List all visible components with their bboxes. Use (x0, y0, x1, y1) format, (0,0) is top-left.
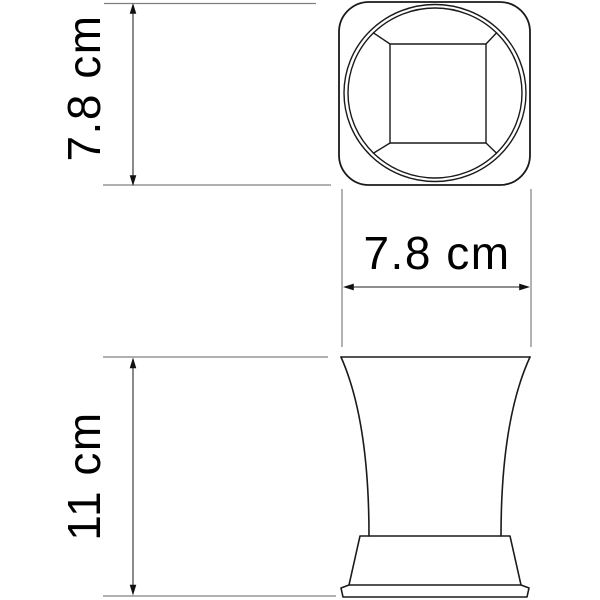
arrowhead-right (519, 284, 530, 291)
dimension-top-view-height: 7.8 cm (58, 3, 331, 186)
arrowhead-up (130, 3, 137, 14)
drawing-canvas: 7.8 cm 7.8 cm 11 cm (0, 0, 600, 600)
arrowhead-down (130, 175, 137, 186)
arrowhead-left (343, 284, 354, 291)
side-view-left-wall (341, 357, 369, 536)
arrowhead-down (130, 585, 137, 596)
side-view-base-plinth (349, 536, 521, 585)
dimension-top-view-width: 7.8 cm (342, 189, 531, 347)
top-view (339, 2, 530, 185)
top-view-rim-outer-ellipse (344, 5, 526, 182)
top-view-inner-bottom-square (390, 44, 486, 143)
top-view-facet-edge-bottom-right (486, 143, 497, 153)
top-view-facet-edge-top-left (374, 33, 391, 44)
dimension-label-top-view-width: 7.8 cm (363, 227, 510, 279)
dimension-label-top-view-height: 7.8 cm (58, 14, 110, 161)
arrowhead-up (130, 358, 137, 369)
side-view-right-wall (501, 357, 530, 536)
side-view (341, 357, 530, 597)
dimension-label-side-view-height: 11 cm (58, 411, 110, 540)
side-view-foot-flange (341, 585, 529, 597)
top-view-facet-edge-top-right (486, 33, 497, 44)
dimension-drawing-svg: 7.8 cm 7.8 cm 11 cm (0, 0, 600, 600)
dimension-side-view-height: 11 cm (58, 357, 336, 596)
top-view-facet-edge-bottom-left (374, 143, 391, 153)
top-view-outer-squircle (339, 2, 530, 185)
